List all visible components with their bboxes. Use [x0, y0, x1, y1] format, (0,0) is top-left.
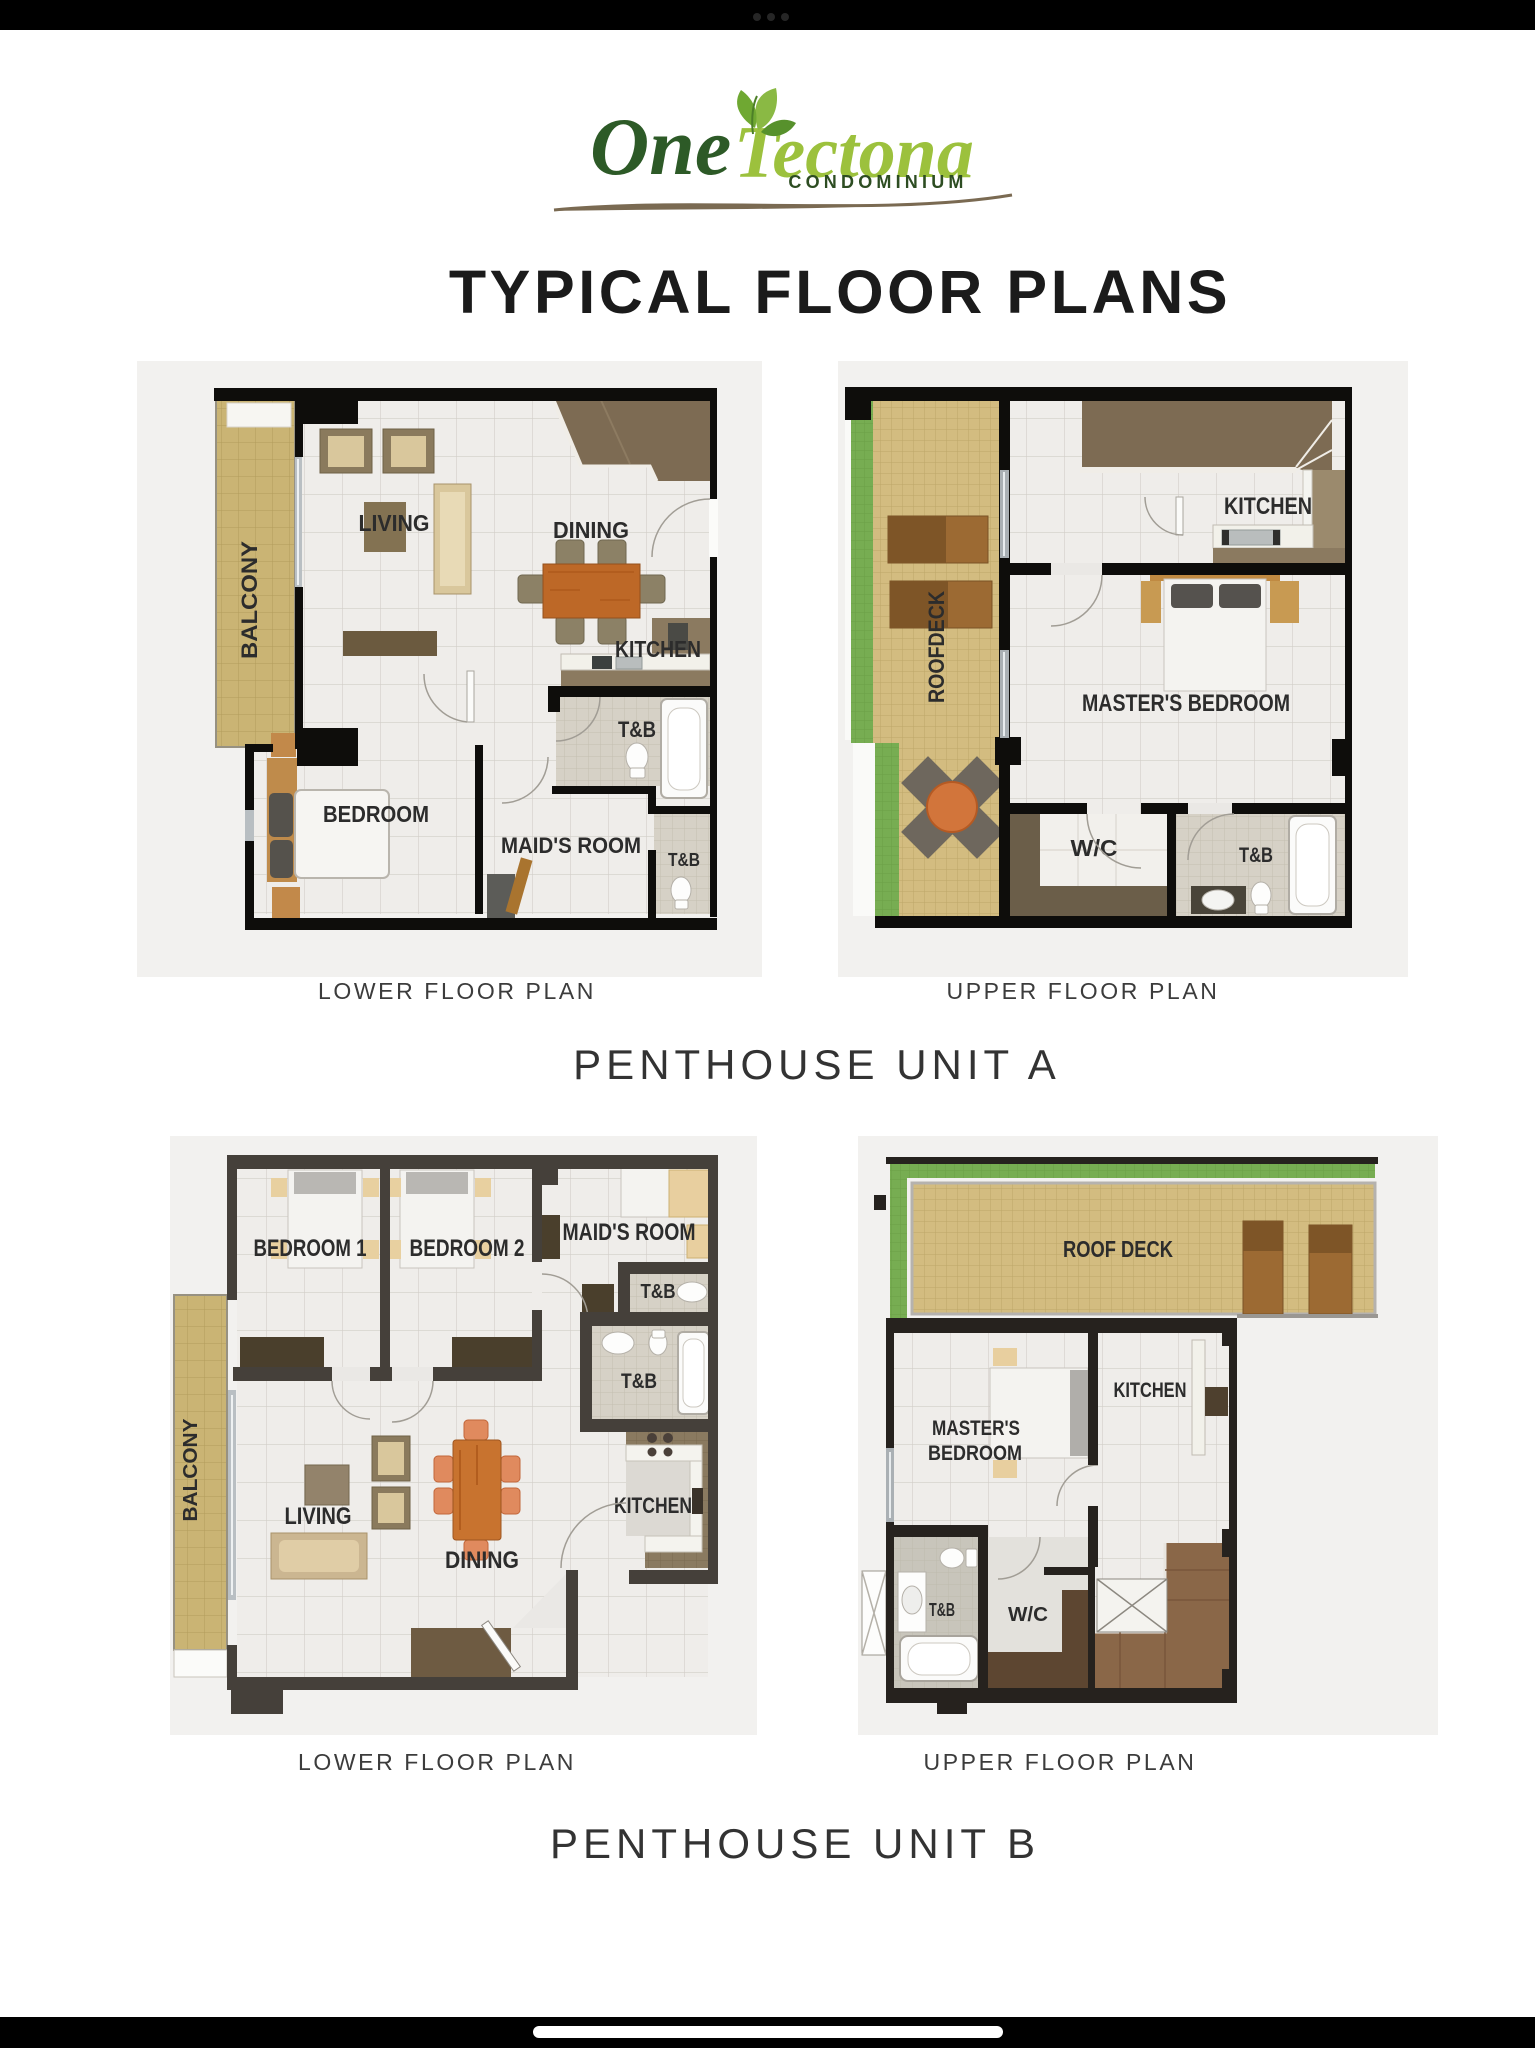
- svg-text:W/C: W/C: [1071, 835, 1118, 861]
- svg-text:UPPER FLOOR PLAN: UPPER FLOOR PLAN: [947, 978, 1220, 1004]
- svg-text:DINING: DINING: [445, 1547, 519, 1574]
- svg-text:T&B: T&B: [929, 1600, 955, 1620]
- svg-text:One: One: [590, 101, 731, 192]
- svg-text:MAID'S ROOM: MAID'S ROOM: [563, 1219, 696, 1246]
- svg-text:KITCHEN: KITCHEN: [614, 1493, 692, 1518]
- svg-text:MAID'S ROOM: MAID'S ROOM: [501, 833, 641, 858]
- svg-text:T&B: T&B: [668, 850, 700, 870]
- svg-text:UPPER FLOOR PLAN: UPPER FLOOR PLAN: [924, 1749, 1197, 1775]
- svg-text:T&B: T&B: [618, 717, 656, 742]
- svg-text:BALCONY: BALCONY: [180, 1418, 202, 1522]
- svg-text:KITCHEN: KITCHEN: [1114, 1379, 1187, 1402]
- svg-text:MASTER'S: MASTER'S: [932, 1417, 1020, 1440]
- svg-text:LIVING: LIVING: [285, 1503, 352, 1530]
- svg-text:W/C: W/C: [1008, 1604, 1048, 1626]
- svg-text:T&B: T&B: [621, 1370, 657, 1393]
- svg-text:BEDROOM 2: BEDROOM 2: [410, 1235, 525, 1262]
- svg-text:LOWER FLOOR PLAN: LOWER FLOOR PLAN: [318, 978, 596, 1004]
- svg-text:CONDOMINIUM: CONDOMINIUM: [788, 172, 967, 192]
- svg-text:PENTHOUSE UNIT A: PENTHOUSE UNIT A: [573, 1041, 1061, 1088]
- svg-text:BALCONY: BALCONY: [237, 541, 262, 659]
- svg-text:KITCHEN: KITCHEN: [615, 636, 701, 662]
- svg-text:ROOF DECK: ROOF DECK: [1063, 1236, 1173, 1262]
- svg-text:KITCHEN: KITCHEN: [1224, 493, 1312, 520]
- svg-text:BEDROOM 1: BEDROOM 1: [254, 1235, 367, 1262]
- svg-text:TYPICAL FLOOR PLANS: TYPICAL FLOOR PLANS: [449, 258, 1231, 326]
- svg-text:PENTHOUSE UNIT B: PENTHOUSE UNIT B: [550, 1820, 1040, 1867]
- svg-text:BEDROOM: BEDROOM: [323, 801, 429, 827]
- svg-text:ROOFDECK: ROOFDECK: [924, 591, 949, 703]
- svg-text:DINING: DINING: [553, 517, 629, 543]
- svg-text:LIVING: LIVING: [359, 510, 430, 536]
- svg-text:T&B: T&B: [641, 1281, 676, 1303]
- svg-text:T&B: T&B: [1239, 844, 1273, 867]
- svg-text:MASTER'S BEDROOM: MASTER'S BEDROOM: [1082, 690, 1290, 717]
- svg-text:BEDROOM: BEDROOM: [928, 1442, 1022, 1465]
- svg-text:LOWER FLOOR PLAN: LOWER FLOOR PLAN: [298, 1749, 576, 1775]
